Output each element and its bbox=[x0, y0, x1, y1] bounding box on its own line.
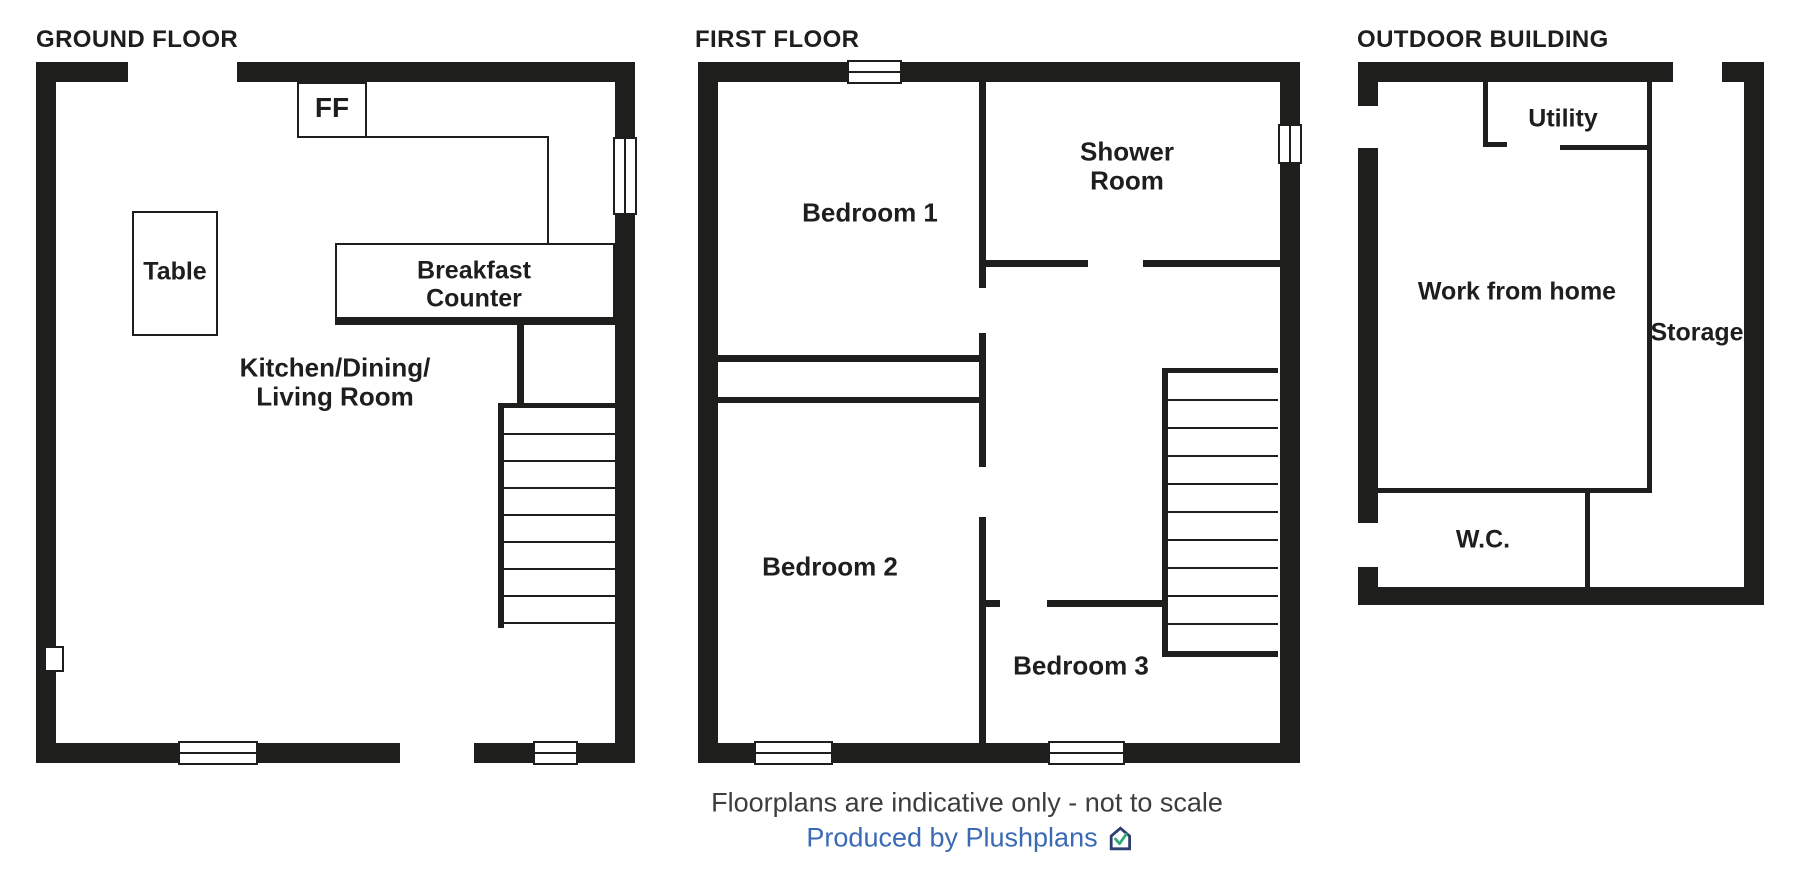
ff-shower-room-label-line1: Shower bbox=[1080, 137, 1174, 168]
outdoor-building-title: OUTDOOR BUILDING bbox=[1357, 26, 1609, 54]
ff-bedroom2-label: Bedroom 2 bbox=[762, 552, 898, 583]
ff-window-right-wall bbox=[1278, 124, 1302, 164]
gf-staircase bbox=[498, 403, 615, 628]
ff-top-wall bbox=[698, 62, 1300, 82]
ff-window-bottom-right bbox=[1048, 741, 1125, 765]
footer-disclaimer-text: Floorplans are indicative only - not to … bbox=[711, 788, 1223, 819]
ff-window-bottom-left bbox=[754, 741, 833, 765]
ff-shower-room-wall-right bbox=[1143, 260, 1280, 267]
gf-window-bottom-right bbox=[533, 741, 578, 765]
gf-meter-box bbox=[44, 646, 64, 672]
footer-credit-link[interactable]: Produced by Plushplans bbox=[806, 823, 1133, 854]
ob-work-from-home-label: Work from home bbox=[1418, 278, 1616, 307]
gf-window-bottom-left bbox=[178, 741, 258, 765]
ob-bottom-wall bbox=[1358, 587, 1764, 605]
window-pane-line bbox=[849, 71, 900, 73]
gf-breakfast-counter-label-line1: Breakfast bbox=[417, 257, 531, 286]
window-pane-line bbox=[1289, 126, 1291, 162]
ff-bedroom1-shower-wall-upper bbox=[979, 82, 986, 288]
ob-utility-left-wall bbox=[1483, 82, 1488, 142]
ob-workroom-bottom-wall bbox=[1378, 488, 1652, 493]
ff-left-wall bbox=[698, 62, 718, 763]
ob-utility-bottom-wall bbox=[1560, 145, 1652, 150]
ff-wardrobe-band-top bbox=[718, 355, 979, 362]
floorplan-page: GROUND FLOOR FF Breakfast Counter Table … bbox=[0, 0, 1800, 893]
gf-kitchen-counter-line-top bbox=[367, 136, 549, 138]
ob-wc-label: W.C. bbox=[1456, 526, 1510, 555]
ob-wc-right-wall bbox=[1585, 493, 1590, 587]
ff-staircase bbox=[1162, 368, 1278, 657]
ff-right-wall bbox=[1280, 62, 1300, 763]
ff-window-top-wall bbox=[847, 60, 902, 84]
ob-storage-label: Storage bbox=[1650, 319, 1743, 348]
ground-floor-title: GROUND FLOOR bbox=[36, 26, 238, 54]
ob-right-wall bbox=[1744, 62, 1764, 605]
ff-shower-room-wall-left bbox=[986, 260, 1088, 267]
gf-breakfast-counter-front-edge bbox=[335, 317, 615, 325]
first-floor-title: FIRST FLOOR bbox=[695, 26, 859, 54]
ob-left-wall-middle bbox=[1358, 148, 1378, 523]
ob-top-wall bbox=[1358, 62, 1673, 82]
gf-window-right-wall bbox=[613, 137, 637, 215]
footer-credit-text: Produced by Plushplans bbox=[806, 823, 1097, 854]
ff-bedroom3-wall bbox=[1047, 600, 1162, 607]
window-pane-line bbox=[180, 752, 256, 754]
gf-kitchen-label-line2: Living Room bbox=[256, 382, 413, 413]
gf-stair-partition-wall bbox=[517, 322, 524, 403]
window-pane-line bbox=[756, 752, 831, 754]
ff-wardrobe-band-bottom bbox=[718, 397, 979, 403]
ff-bedroom2-bedroom3-wall bbox=[979, 517, 986, 743]
gf-kitchen-counter-line-side bbox=[547, 136, 549, 243]
window-pane-line bbox=[624, 139, 626, 213]
ob-utility-left-wall-stub bbox=[1483, 142, 1507, 147]
window-pane-line bbox=[535, 752, 576, 754]
ob-storage-left-wall bbox=[1647, 82, 1652, 493]
gf-kitchen-label-line1: Kitchen/Dining/ bbox=[240, 353, 431, 384]
ff-bedroom1-label: Bedroom 1 bbox=[802, 198, 938, 229]
ff-bedroom3-wall-stub bbox=[979, 600, 1000, 607]
window-pane-line bbox=[1050, 752, 1123, 754]
gf-breakfast-counter-label-line2: Counter bbox=[426, 285, 522, 314]
gf-fridge-freezer-label: FF bbox=[315, 92, 349, 124]
ff-bedroom3-label: Bedroom 3 bbox=[1013, 651, 1149, 682]
ff-landing-wall-middle bbox=[979, 333, 986, 467]
gf-table-label: Table bbox=[143, 258, 206, 287]
plushplans-house-check-logo bbox=[1108, 825, 1134, 851]
ob-utility-label: Utility bbox=[1528, 105, 1597, 134]
gf-top-wall bbox=[237, 62, 635, 82]
ff-shower-room-label-line2: Room bbox=[1090, 166, 1164, 197]
ob-left-wall-upper bbox=[1358, 62, 1378, 106]
